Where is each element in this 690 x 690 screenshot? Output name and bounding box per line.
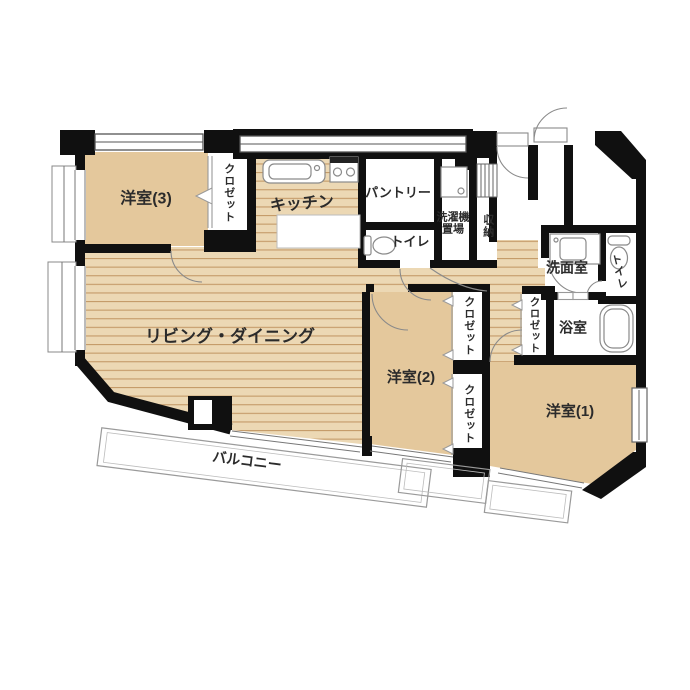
floorplan: 洋室(3) クロゼット キッチン パントリー トイレ 洗濯機置場 収納 洗面室 … bbox=[0, 0, 690, 690]
door-leaf-entrance bbox=[534, 128, 567, 142]
toilet-hall-label: トイレ bbox=[390, 235, 429, 249]
pantry-label: パントリー bbox=[365, 186, 431, 200]
living-label: リビング・ダイニング bbox=[145, 328, 315, 346]
closet-bed2-bottom-label: クロゼット bbox=[462, 384, 474, 444]
window-kitchen-top bbox=[240, 136, 466, 152]
closet-bed3-label: クロゼット bbox=[222, 163, 234, 223]
bedroom3-label: 洋室(3) bbox=[120, 192, 172, 209]
window-bedroom3-top bbox=[95, 134, 203, 150]
laundry-label: 洗濯機置場 bbox=[437, 212, 470, 235]
gas-stove-icon bbox=[330, 157, 358, 182]
kitchen-sink-icon bbox=[263, 160, 325, 183]
kitchen-counter bbox=[277, 215, 360, 248]
balcony-bed1 bbox=[484, 481, 571, 523]
door-leaf-hall bbox=[497, 133, 528, 146]
closet-bed2-top-label: クロゼット bbox=[462, 296, 474, 356]
bath-folding-door bbox=[558, 293, 588, 300]
bathtub-icon bbox=[600, 305, 633, 352]
bedroom1-area bbox=[490, 362, 636, 484]
bedroom1-label: 洋室(1) bbox=[546, 404, 594, 420]
storage-label: 収納 bbox=[481, 214, 493, 238]
pillar-notch bbox=[194, 400, 212, 424]
bedroom2-label: 洋室(2) bbox=[387, 370, 435, 386]
floorplan-drawing bbox=[0, 0, 690, 690]
window-bedroom1-right bbox=[632, 388, 647, 442]
storage-shelf-icon bbox=[477, 164, 497, 197]
closet-bed1-label: クロゼット bbox=[528, 296, 539, 354]
bathroom-label: 浴室 bbox=[559, 321, 587, 336]
window-living-bay bbox=[48, 262, 86, 352]
washing-machine-icon bbox=[441, 167, 467, 197]
washroom-label: 洗面室 bbox=[546, 261, 588, 276]
window-bedroom3-bay bbox=[52, 166, 86, 242]
